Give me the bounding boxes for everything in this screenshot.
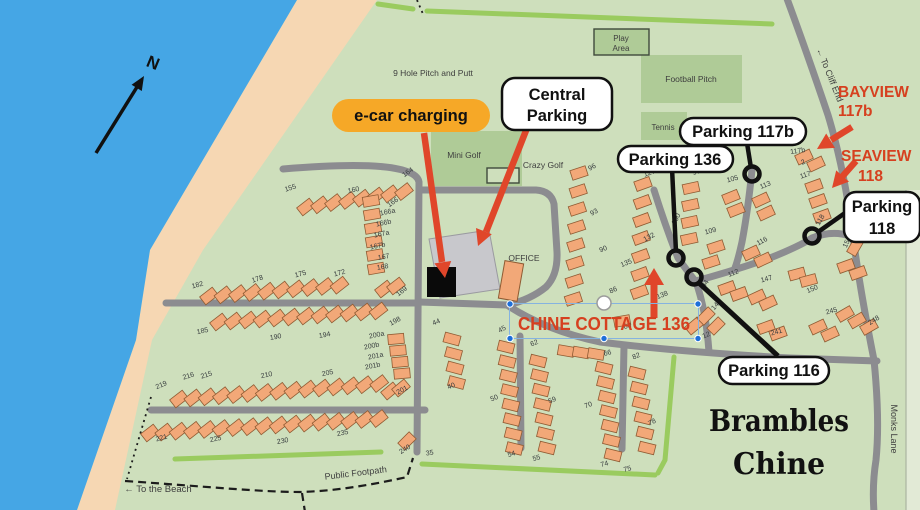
seaview-label-line2[interactable]: 118 bbox=[858, 168, 883, 185]
caravan-number: 35 bbox=[425, 449, 434, 457]
football-pitch-label: Football Pitch bbox=[665, 74, 717, 84]
tennis-label: Tennis bbox=[651, 123, 674, 132]
park-name-line1: Brambles bbox=[709, 404, 849, 439]
chine-cottage-label[interactable]: CHINE COTTAGE 136 bbox=[518, 313, 690, 334]
parking-118-callout[interactable]: Parking 118 bbox=[844, 192, 920, 242]
caravan-unit bbox=[394, 368, 411, 379]
play-area-label-line2: Area bbox=[613, 44, 630, 53]
selection-handle-top-right[interactable] bbox=[695, 301, 701, 307]
parking-116-callout[interactable]: Parking 116 bbox=[719, 357, 829, 384]
caravan-unit bbox=[388, 333, 405, 344]
park-map: 155160164166166a166b167a167b167168169182… bbox=[0, 0, 920, 510]
bayview-label-line1[interactable]: BAYVIEW bbox=[838, 84, 909, 101]
parking-116-label: Parking 116 bbox=[728, 362, 820, 380]
selection-handle-bottom-center[interactable] bbox=[601, 335, 607, 341]
parking-117b-callout[interactable]: Parking 117b bbox=[680, 118, 806, 145]
mini-golf-label: Mini Golf bbox=[447, 150, 481, 160]
road bbox=[622, 346, 624, 449]
crazy-golf-label: Crazy Golf bbox=[523, 160, 564, 170]
to-the-beach-label: ← To the Beach bbox=[124, 484, 191, 495]
park-name-line2: Chine bbox=[733, 447, 825, 482]
parking-136-label: Parking 136 bbox=[629, 151, 722, 169]
bayview-label-line2[interactable]: 117b bbox=[838, 103, 872, 120]
parking-136-callout[interactable]: Parking 136 bbox=[618, 146, 733, 172]
central-parking-label-line2: Parking bbox=[527, 107, 588, 125]
central-parking-callout[interactable]: Central Parking bbox=[502, 78, 612, 130]
play-area-label-line1: Play bbox=[613, 34, 629, 43]
seaview-label-line1[interactable]: SEAVIEW bbox=[841, 148, 912, 165]
parking-117b-label: Parking 117b bbox=[692, 123, 794, 141]
selection-handle-bottom-right[interactable] bbox=[695, 335, 701, 341]
parking-118-label-line2: 118 bbox=[869, 220, 896, 238]
monks-lane-label: Monks Lane bbox=[889, 404, 899, 453]
selection-handle-bottom-left[interactable] bbox=[507, 335, 513, 341]
pitch-and-putt-label: 9 Hole Pitch and Putt bbox=[393, 68, 473, 78]
parking-118-label-line1: Parking bbox=[852, 198, 913, 216]
selection-handle-top-center[interactable] bbox=[597, 296, 611, 310]
caravan-unit bbox=[392, 356, 409, 367]
caravan-unit bbox=[390, 345, 407, 356]
ecar-charging-callout[interactable]: e-car charging bbox=[332, 99, 490, 132]
central-parking-label-line1: Central bbox=[529, 86, 586, 104]
selection-handle-top-left[interactable] bbox=[507, 301, 513, 307]
ecar-callout-label: e-car charging bbox=[354, 107, 468, 125]
office-label: OFFICE bbox=[508, 253, 539, 263]
